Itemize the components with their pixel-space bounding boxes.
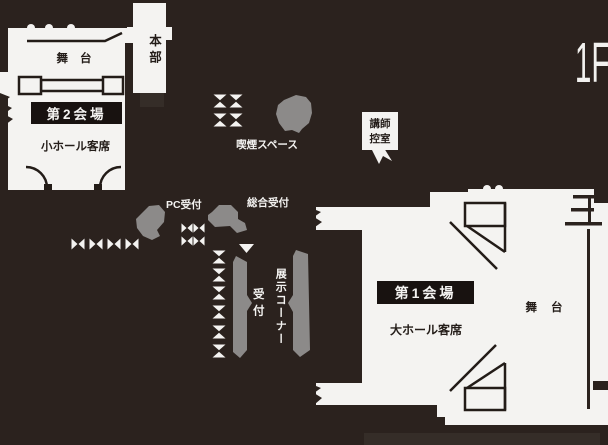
wall-bump-icon (483, 185, 491, 193)
wall-bump-icon (27, 24, 35, 32)
exhibition-corner-label: 展示コーナー (273, 268, 286, 346)
stage-slit-wall (588, 198, 591, 224)
venue2-name-sign: 第2会場 (31, 102, 122, 124)
stage-slit (565, 222, 602, 226)
table-icon (193, 236, 204, 245)
table-icon (230, 114, 243, 127)
table-icon (72, 239, 85, 250)
plant-icon (136, 205, 165, 240)
venue2-stage-label: 舞台 (28, 53, 120, 67)
venue2-left-wing (0, 72, 9, 96)
door-stop-icon (44, 184, 52, 190)
table-icon (213, 306, 226, 319)
venue1-name-sign: 第1会場 (377, 281, 474, 304)
lecturer-room-label-line2: 控室 (370, 131, 391, 146)
counter-marker-icon (239, 244, 254, 253)
smoking-space (214, 95, 313, 134)
table-icon (214, 95, 227, 108)
general-reception-label: 総合受付 (247, 197, 289, 210)
venue1-name-label: 第1会場 (395, 283, 457, 303)
stage-back-notch (593, 381, 608, 390)
venue2-name-label: 第2会場 (46, 103, 106, 123)
table-icon (108, 239, 121, 250)
wall-bump-icon (495, 185, 503, 193)
table-icon (213, 287, 226, 300)
table-icon (213, 269, 226, 282)
door-stop-icon (94, 184, 102, 190)
table-icon (214, 114, 227, 127)
exhibition-counter (288, 250, 310, 357)
pc-reception-label: PC受付 (166, 199, 202, 212)
table-icon (181, 236, 192, 245)
table-icon (213, 251, 226, 264)
wall-bump-icon (67, 24, 75, 32)
venue1-stage-label: 舞台 (510, 302, 578, 316)
venue2-stage-box-right (103, 77, 123, 94)
wall-bump-icon (45, 24, 53, 32)
headquarters-label: 本部 (139, 22, 161, 78)
table-icon (126, 239, 139, 250)
venue1-shadow (364, 433, 600, 445)
headquarters-tab-left (127, 27, 133, 40)
table-icon (213, 345, 226, 358)
venue2-stage-edge (41, 80, 107, 91)
stage-slit (573, 195, 594, 199)
pointer-icon (371, 148, 392, 164)
headquarters-tab-right (166, 27, 172, 40)
floor-plan-1f: 舞台 第2会場 小ホール客席 本部 喫煙スペース 講師 控室 PC受付 総合受付… (0, 0, 608, 445)
venue2-seating-label: 小ホール客席 (17, 141, 134, 155)
smoking-space-label: 喫煙スペース (222, 139, 312, 152)
table-icon (181, 223, 192, 232)
table-icon (193, 223, 204, 232)
plant-icon (276, 95, 312, 133)
table-icon (90, 239, 103, 250)
venue2-stage-box-left (19, 77, 41, 94)
corridor-tables (72, 239, 139, 250)
table-icon (213, 326, 226, 339)
lecturer-room-label-line1: 講師 (370, 116, 391, 131)
lecturer-room: 講師 控室 (362, 112, 398, 150)
venue1-seating-label: 大ホール客席 (376, 323, 476, 337)
reception-desk-label: 受付 (250, 288, 264, 321)
plant-icon (208, 205, 247, 233)
table-icon (230, 95, 243, 108)
floor-label: 1F (575, 32, 604, 96)
stage-back-wall (587, 229, 590, 409)
